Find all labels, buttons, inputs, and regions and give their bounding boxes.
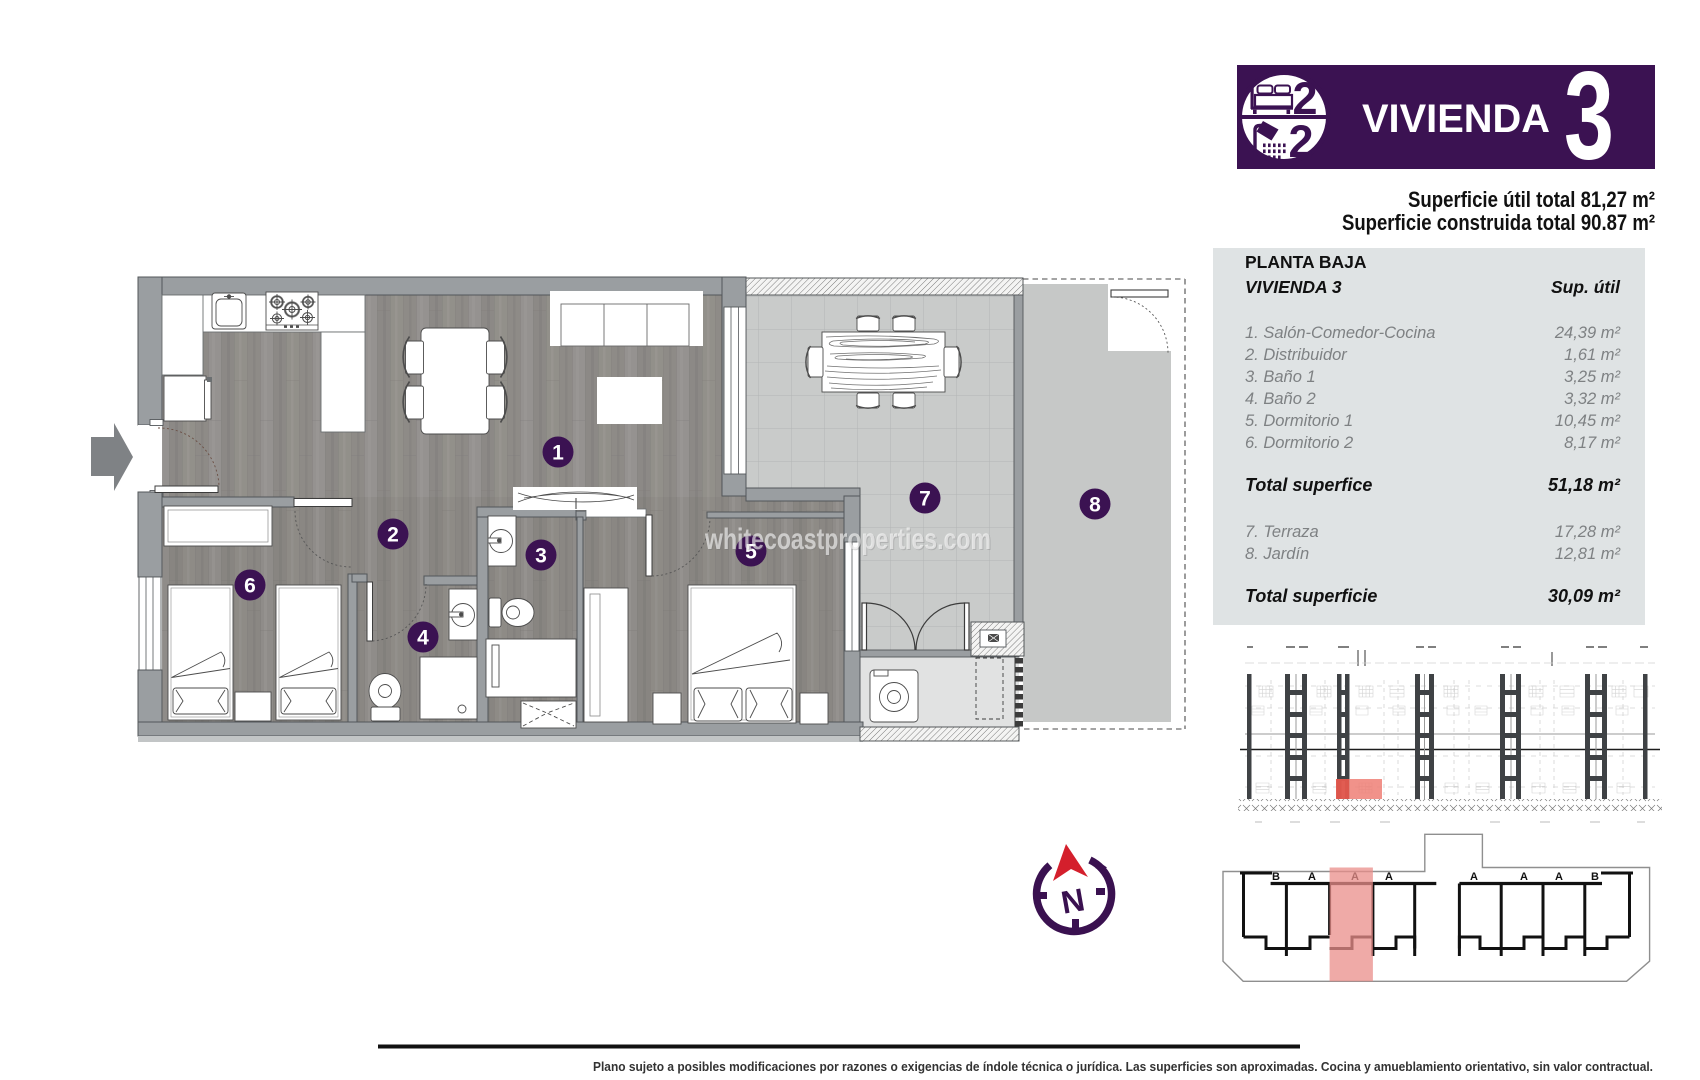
svg-text:4: 4 [417, 627, 429, 650]
svg-text:2: 2 [387, 524, 399, 547]
svg-text:7. Terraza: 7. Terraza [1245, 523, 1319, 541]
svg-text:2: 2 [1288, 116, 1313, 167]
svg-text:Superficie útil total 81,27 m²: Superficie útil total 81,27 m² [1408, 187, 1655, 212]
svg-text:51,18 m²: 51,18 m² [1548, 475, 1621, 495]
svg-text:A: A [1555, 871, 1563, 883]
svg-text:4. Baño 2: 4. Baño 2 [1245, 390, 1316, 408]
svg-text:1. Salón-Comedor-Cocina: 1. Salón-Comedor-Cocina [1245, 324, 1435, 342]
svg-text:3. Baño 1: 3. Baño 1 [1245, 368, 1316, 386]
svg-text:Sup. útil: Sup. útil [1551, 277, 1621, 297]
svg-text:1,61 m²: 1,61 m² [1564, 346, 1620, 364]
svg-text:Plano sujeto a posibles modifi: Plano sujeto a posibles modificaciones p… [593, 1059, 1653, 1074]
svg-text:A: A [1520, 871, 1528, 883]
svg-text:30,09 m²: 30,09 m² [1548, 586, 1621, 606]
svg-text:Total superfice: Total superfice [1245, 475, 1372, 495]
svg-text:8. Jardín: 8. Jardín [1245, 545, 1309, 563]
svg-text:A: A [1385, 871, 1393, 883]
svg-text:6: 6 [244, 575, 256, 598]
svg-text:3,32 m²: 3,32 m² [1564, 390, 1620, 408]
svg-text:1: 1 [552, 442, 564, 465]
svg-text:8: 8 [1089, 494, 1101, 517]
svg-text:VIVIENDA 3: VIVIENDA 3 [1245, 277, 1342, 297]
svg-text:Superficie construida total 90: Superficie construida total 90.87 m² [1342, 210, 1655, 235]
svg-text:B: B [1591, 871, 1599, 883]
svg-text:3,25 m²: 3,25 m² [1564, 368, 1620, 386]
svg-text:whitecoastproperties.com: whitecoastproperties.com [704, 523, 991, 556]
svg-text:PLANTA BAJA: PLANTA BAJA [1245, 252, 1367, 272]
svg-text:8,17 m²: 8,17 m² [1564, 434, 1620, 452]
svg-text:7: 7 [919, 488, 931, 511]
svg-text:3: 3 [535, 545, 547, 568]
svg-text:24,39 m²: 24,39 m² [1554, 324, 1621, 342]
svg-text:17,28 m²: 17,28 m² [1555, 523, 1621, 541]
svg-text:12,81 m²: 12,81 m² [1555, 545, 1621, 563]
svg-text:3: 3 [1564, 46, 1614, 186]
svg-text:5. Dormitorio 1: 5. Dormitorio 1 [1245, 412, 1353, 430]
svg-text:A: A [1308, 871, 1316, 883]
svg-text:2. Distribuidor: 2. Distribuidor [1244, 346, 1348, 364]
svg-text:VIVIENDA: VIVIENDA [1362, 97, 1550, 141]
svg-text:A: A [1470, 871, 1478, 883]
svg-text:6. Dormitorio 2: 6. Dormitorio 2 [1245, 434, 1353, 452]
svg-text:N: N [1058, 881, 1087, 920]
svg-text:B: B [1272, 871, 1280, 883]
svg-text:Total superficie: Total superficie [1245, 586, 1377, 606]
svg-text:10,45 m²: 10,45 m² [1555, 412, 1621, 430]
